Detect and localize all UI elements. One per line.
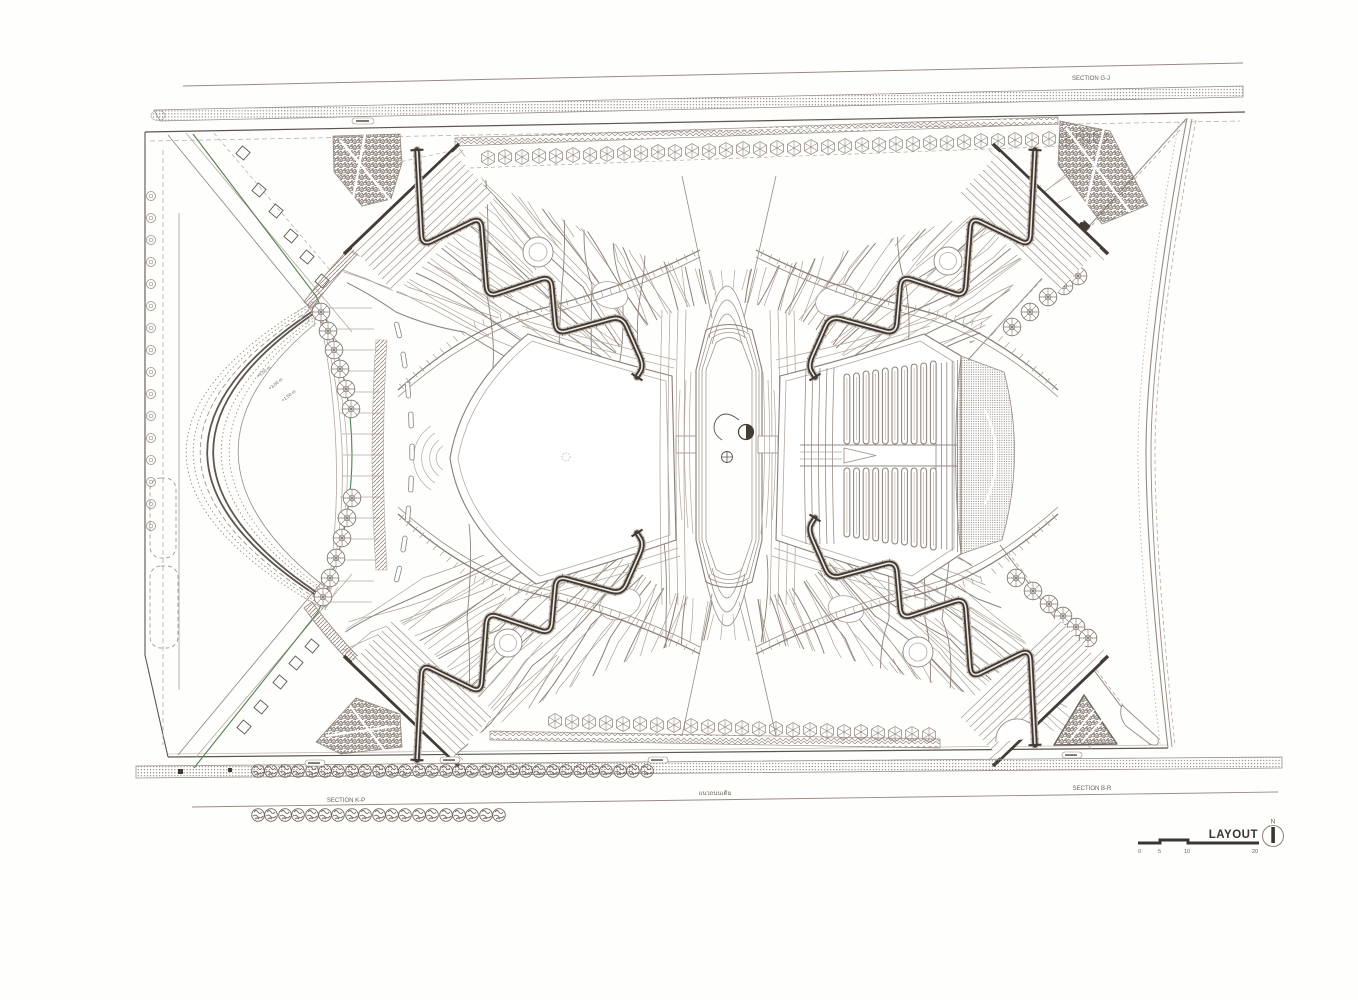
svg-text:LAYOUT: LAYOUT [1209, 829, 1258, 841]
svg-text:10: 10 [1184, 849, 1190, 855]
svg-text:5: 5 [1158, 849, 1161, 855]
svg-text:N: N [1271, 819, 1276, 826]
svg-text:0: 0 [1138, 849, 1141, 855]
svg-text:SECTION K-P: SECTION K-P [327, 798, 365, 804]
svg-text:SECTION G-J: SECTION G-J [1072, 76, 1110, 82]
svg-text:แนวถนนเดิม: แนวถนนเดิม [698, 790, 731, 797]
svg-text:SECTION B-R: SECTION B-R [1073, 786, 1112, 792]
svg-text:20: 20 [1252, 849, 1258, 855]
